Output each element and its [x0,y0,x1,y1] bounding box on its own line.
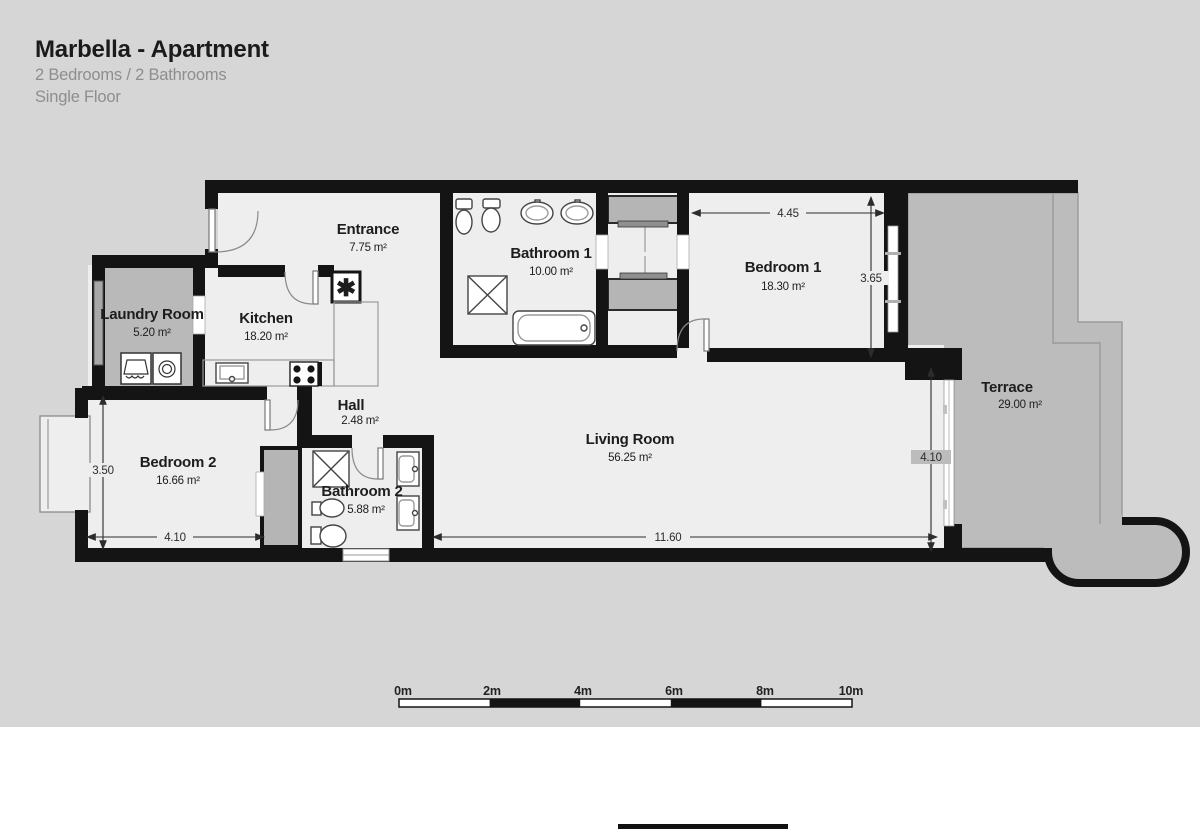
kitchen-sink-icon [216,363,248,383]
shower-icon [313,451,349,487]
laundry-window [94,281,103,365]
bedroom1-window [888,226,898,332]
bay-window [40,416,90,512]
utility-symbol: ✱ [332,272,360,302]
room-label-kitchen: Kitchen [239,310,293,327]
stove-icon [290,362,322,386]
room-area-bathroom2: 5.88 m² [347,504,385,516]
floor-plan-svg: ✱ [0,0,1200,829]
wardrobe [608,279,685,310]
room-area-bathroom1: 10.00 m² [529,266,573,278]
bathroom1-pocket-door [596,235,608,269]
page-floor-label: Single Floor [35,86,269,109]
washer-icon [121,353,151,384]
room-area-bedroom2: 16.66 m² [156,475,200,487]
scale-label: 0m [394,684,412,698]
scale-label: 10m [839,684,864,698]
room-label-bathroom2: Bathroom 2 [321,483,402,500]
floor-plan-canvas: Marbella - Apartment 2 Bedrooms / 2 Bath… [0,0,1200,829]
laundry-fixtures [121,353,181,384]
room-label-terrace: Terrace [981,379,1033,396]
room-label-living: Living Room [586,431,675,448]
room-label-hall: Hall [338,397,365,414]
room-area-entrance: 7.75 m² [349,242,387,254]
room-label-bathroom1: Bathroom 1 [510,245,591,262]
dimension-label: 11.60 [655,532,682,544]
dimension-label: 4.10 [164,532,186,544]
bathtub-icon [513,311,595,345]
room-area-kitchen: 18.20 m² [244,331,288,343]
dimension-label: 4.10 [920,452,942,464]
room-area-hall: 2.48 m² [341,415,379,427]
bidet-icon [456,199,472,234]
page-title: Marbella - Apartment [35,36,269,64]
sink-icon [397,452,419,486]
dimension-label: 4.45 [777,208,799,220]
page-subtitle: 2 Bedrooms / 2 Bathrooms [35,64,269,87]
room-area-terrace: 29.00 m² [998,399,1042,411]
room-label-bedroom1: Bedroom 1 [745,259,822,276]
utility-symbol-glyph: ✱ [336,275,356,302]
room-area-bedroom1: 18.30 m² [761,281,805,293]
toilet-icon [311,525,346,547]
wardrobe [608,196,685,223]
sink-icon [397,496,419,530]
title-block: Marbella - Apartment 2 Bedrooms / 2 Bath… [35,36,269,109]
scale-label: 2m [483,684,501,698]
dimension-label: 3.50 [92,465,114,477]
scale-label: 8m [756,684,774,698]
scale-label: 6m [665,684,683,698]
dryer-icon [153,353,181,384]
room-area-laundry: 5.20 m² [133,327,171,339]
toilet-icon [482,199,500,232]
room-label-entrance: Entrance [337,221,400,238]
shower-icon [468,276,507,314]
room-label-laundry: Laundry Room [100,306,203,323]
closet [262,448,300,547]
room-area-living: 56.25 m² [608,452,652,464]
room-label-bedroom2: Bedroom 2 [140,454,217,471]
bedroom1-pocket-door [677,235,689,269]
dimension-label: 3.65 [860,273,882,285]
closet-door-opening [256,472,264,516]
bidet-icon [312,499,344,517]
scale-bar-track [399,699,852,707]
scale-label: 4m [574,684,592,698]
footer-mark [618,824,788,829]
